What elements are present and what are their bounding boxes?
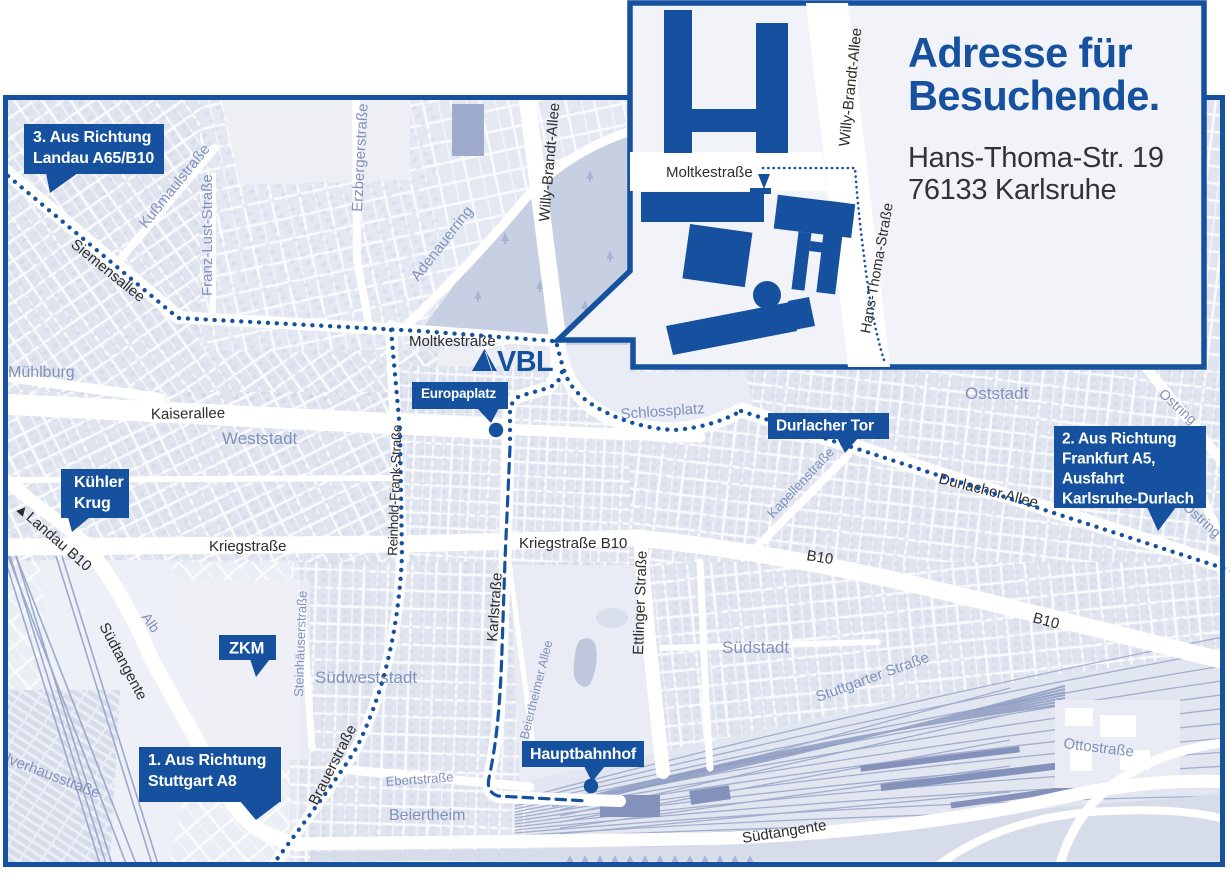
svg-text:Hauptbahnhof: Hauptbahnhof — [530, 746, 637, 763]
svg-text:Oststadt: Oststadt — [965, 384, 1029, 403]
svg-text:Moltkestraße: Moltkestraße — [666, 164, 753, 181]
svg-text:Landau A65/B10: Landau A65/B10 — [33, 150, 154, 167]
svg-text:Stuttgart A8: Stuttgart A8 — [148, 773, 237, 790]
svg-text:Ausfahrt: Ausfahrt — [1062, 471, 1124, 488]
svg-text:Franz-Lust-Straße: Franz-Lust-Straße — [199, 174, 216, 296]
svg-text:Ettlinger Straße: Ettlinger Straße — [630, 550, 651, 655]
svg-text:Hans-Thoma-Str. 19: Hans-Thoma-Str. 19 — [908, 142, 1164, 174]
svg-text:Südstadt: Südstadt — [722, 638, 789, 657]
svg-text:Adresse für: Adresse für — [908, 29, 1132, 76]
svg-text:Mühlburg: Mühlburg — [8, 364, 75, 381]
svg-text:Kühler: Kühler — [74, 474, 123, 491]
svg-text:Karlsruhe-Durlach: Karlsruhe-Durlach — [1062, 491, 1194, 508]
svg-text:Durlacher Tor: Durlacher Tor — [776, 418, 874, 435]
svg-text:Weststadt: Weststadt — [222, 429, 298, 448]
svg-text:Südweststadt: Südweststadt — [315, 668, 417, 687]
svg-text:Kriegstraße: Kriegstraße — [209, 538, 287, 555]
svg-text:Europaplatz: Europaplatz — [421, 386, 497, 401]
svg-text:2. Aus Richtung: 2. Aus Richtung — [1062, 431, 1176, 448]
svg-text:Beiertheim: Beiertheim — [389, 807, 465, 824]
svg-text:VBL: VBL — [497, 346, 553, 378]
svg-text:76133 Karlsruhe: 76133 Karlsruhe — [908, 174, 1116, 206]
svg-text:3. Aus Richtung: 3. Aus Richtung — [33, 129, 151, 146]
svg-text:ZKM: ZKM — [229, 639, 264, 657]
svg-text:Kriegstraße B10: Kriegstraße B10 — [519, 535, 627, 552]
svg-text:Frankfurt A5,: Frankfurt A5, — [1062, 451, 1155, 468]
svg-text:Kaiserallee: Kaiserallee — [151, 405, 226, 423]
svg-text:Krug: Krug — [74, 495, 111, 512]
svg-text:1. Aus Richtung: 1. Aus Richtung — [148, 752, 266, 769]
svg-text:Besuchende.: Besuchende. — [908, 72, 1160, 119]
